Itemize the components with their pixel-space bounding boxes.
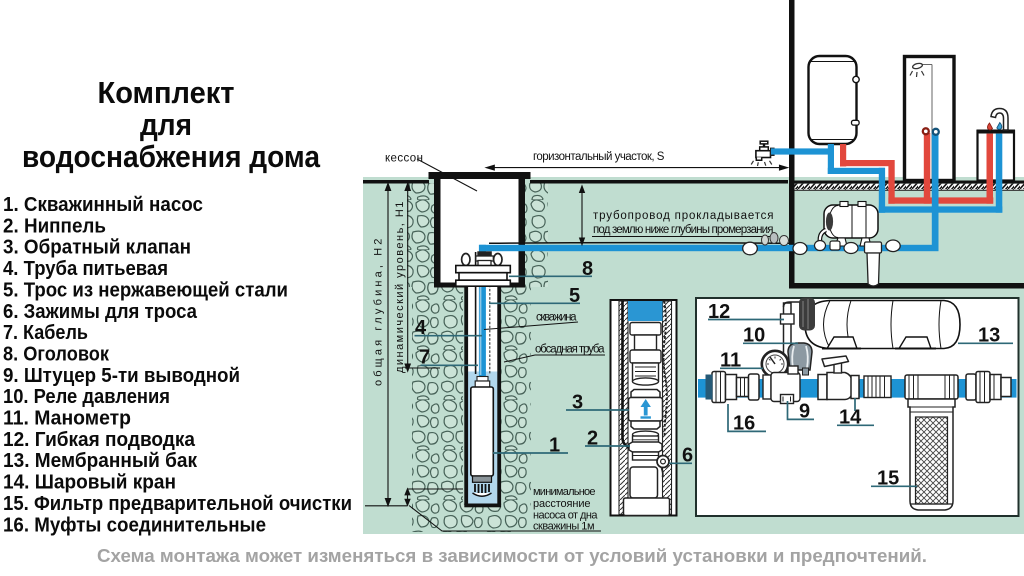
svg-text:6. Зажимы для троса: 6. Зажимы для троса bbox=[3, 300, 198, 323]
svg-text:7: 7 bbox=[419, 347, 430, 369]
svg-text:10: 10 bbox=[743, 325, 765, 347]
svg-text:скважины 1м: скважины 1м bbox=[533, 521, 595, 533]
svg-text:расстояние: расстояние bbox=[533, 498, 591, 510]
svg-text:9. Штуцер 5-ти выводной: 9. Штуцер 5-ти выводной bbox=[3, 364, 240, 387]
svg-text:5: 5 bbox=[569, 285, 580, 307]
svg-text:5. Трос из нержавеющей стали: 5. Трос из нержавеющей стали bbox=[3, 278, 288, 301]
svg-text:трубопровод прокладывается: трубопровод прокладывается bbox=[593, 210, 774, 222]
svg-text:15. Фильтр предварительной очи: 15. Фильтр предварительной очистки bbox=[3, 492, 352, 515]
svg-text:14: 14 bbox=[839, 407, 862, 429]
svg-text:11: 11 bbox=[720, 350, 741, 372]
svg-text:1: 1 bbox=[549, 435, 560, 457]
svg-text:12: 12 bbox=[708, 301, 730, 323]
svg-text:8: 8 bbox=[582, 258, 593, 280]
svg-text:4: 4 bbox=[415, 317, 427, 339]
svg-text:3: 3 bbox=[572, 392, 583, 414]
svg-text:11. Манометр: 11. Манометр bbox=[3, 407, 131, 430]
svg-text:динамический уровень, Н1: динамический уровень, Н1 bbox=[394, 201, 406, 373]
svg-text:водоснабжения дома: водоснабжения дома bbox=[22, 139, 321, 174]
svg-text:9: 9 bbox=[799, 401, 810, 423]
svg-text:12. Гибкая подводка: 12. Гибкая подводка bbox=[3, 428, 196, 451]
svg-text:1. Скважинный насос: 1. Скважинный насос bbox=[3, 193, 203, 216]
svg-text:для: для bbox=[140, 107, 192, 142]
svg-text:общая глубина, Н2: общая глубина, Н2 bbox=[373, 238, 385, 386]
svg-text:3. Обратный клапан: 3. Обратный клапан bbox=[3, 236, 191, 259]
svg-text:14. Шаровый кран: 14. Шаровый кран bbox=[3, 471, 176, 494]
svg-text:2. Ниппель: 2. Ниппель bbox=[3, 214, 106, 237]
svg-text:13: 13 bbox=[978, 325, 1000, 347]
svg-text:кессон: кессон bbox=[385, 153, 423, 165]
svg-text:13. Мембранный бак: 13. Мембранный бак bbox=[3, 449, 198, 472]
svg-text:Схема монтажа может изменяться: Схема монтажа может изменяться в зависим… bbox=[97, 545, 927, 566]
svg-text:10. Реле давления: 10. Реле давления bbox=[3, 385, 170, 408]
svg-text:6: 6 bbox=[682, 445, 693, 467]
svg-text:обсадная труба: обсадная труба bbox=[535, 344, 605, 356]
svg-text:минимальное: минимальное bbox=[533, 486, 596, 498]
svg-text:скважина: скважина bbox=[536, 312, 577, 324]
svg-text:8. Оголовок: 8. Оголовок bbox=[3, 343, 110, 366]
svg-text:горизонтальный участок, S: горизонтальный участок, S bbox=[533, 151, 665, 163]
svg-text:4. Труба питьевая: 4. Труба питьевая bbox=[3, 257, 168, 280]
svg-text:16. Муфты соединительные: 16. Муфты соединительные bbox=[3, 513, 266, 536]
svg-text:Комплект: Комплект bbox=[98, 75, 235, 110]
svg-text:7. Кабель: 7. Кабель bbox=[3, 321, 88, 344]
svg-text:2: 2 bbox=[587, 428, 598, 450]
svg-text:под землю ниже глубины промерз: под землю ниже глубины промерзания bbox=[593, 224, 774, 236]
svg-text:16: 16 bbox=[733, 413, 755, 435]
svg-text:15: 15 bbox=[877, 468, 899, 490]
